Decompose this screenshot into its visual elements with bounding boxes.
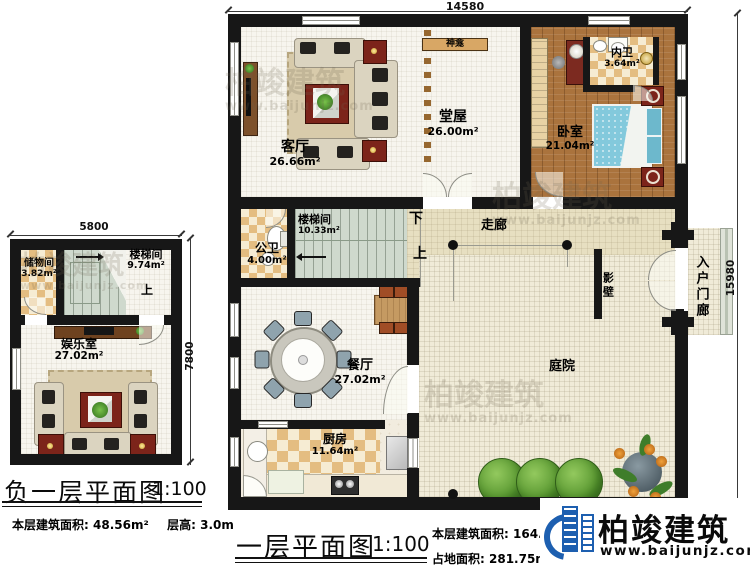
wall: [407, 468, 419, 498]
fruit: [656, 456, 667, 467]
room-label-woshi: 卧室 21.04m²: [535, 126, 605, 152]
wall: [47, 315, 139, 325]
room-name: 娱乐室: [48, 338, 110, 351]
room-label-neiwei: 内卫 3.64m²: [596, 47, 648, 69]
title-underline: [2, 501, 202, 507]
pillow: [646, 136, 662, 164]
dim-top-floor1: 14580: [420, 0, 510, 13]
plant: [317, 94, 333, 110]
window: [230, 42, 239, 116]
plant: [245, 64, 254, 73]
room-label-tingyuan: 庭院: [534, 360, 590, 375]
room-label-tangwu: 堂屋 26.00m²: [408, 110, 498, 138]
stair-arrow: [76, 256, 100, 258]
wall: [675, 311, 688, 510]
stat-label: 层高:: [167, 518, 196, 532]
dining-chair: [294, 311, 312, 326]
column-dot: [562, 240, 572, 250]
porch-column: [671, 309, 684, 335]
room-area: 21.04m²: [535, 141, 605, 153]
wall: [520, 26, 531, 197]
room-area: 4.00m²: [243, 255, 291, 266]
dim-top-basement: 5800: [70, 221, 118, 233]
wall: [21, 315, 25, 325]
tv: [246, 78, 251, 116]
stair-arrow-head: [98, 253, 104, 261]
sofa-cushion: [42, 414, 55, 428]
floor1-land-stat: 占地面积: 281.75m²: [432, 550, 553, 567]
eave-line: [453, 245, 567, 246]
basement-scale: 1:100: [152, 478, 207, 500]
sofa-cushion: [134, 390, 147, 404]
stair-landing-line: [295, 240, 407, 241]
column-dot: [448, 240, 458, 250]
logo-tower-icon: [581, 514, 594, 552]
fruit: [644, 444, 655, 455]
window: [230, 437, 239, 467]
wall: [164, 315, 171, 325]
wall: [583, 37, 590, 85]
room-area: 9.74m²: [120, 261, 172, 272]
sofa-cushion: [372, 116, 388, 130]
wall: [472, 197, 533, 209]
table-centerpiece: [298, 355, 308, 365]
sofa-cushion: [72, 438, 87, 450]
stat-label: 本层建筑面积:: [432, 527, 509, 541]
stair-down-label: 下: [406, 212, 426, 228]
stair-arrow: [300, 256, 326, 258]
burner: [346, 480, 354, 488]
room-label-yingbi: 影壁: [601, 264, 613, 308]
dim-tick: [7, 230, 15, 238]
wall: [583, 85, 635, 92]
wall: [171, 239, 182, 465]
room-name: 厨房: [300, 433, 370, 446]
room-label-loutijian: 楼梯间 10.33m²: [298, 214, 356, 236]
stair-up-label: 上: [410, 247, 430, 263]
prep-table: [268, 470, 304, 494]
room-area: 10.33m²: [298, 226, 356, 236]
stat-label: 本层建筑面积:: [12, 518, 89, 532]
room-area: 26.00m²: [408, 126, 498, 138]
room-label-gongwei: 公卫 4.00m²: [243, 242, 291, 267]
room-area: 26.66m²: [250, 156, 340, 168]
room-label-rumenlang: 入户门廊: [693, 254, 708, 320]
room-label-canting: 餐厅 27.02m²: [320, 359, 400, 386]
room-label-yuleshi: 娱乐室 27.02m²: [48, 338, 110, 363]
dim-tick: [684, 6, 692, 14]
room-name: 卧室: [535, 126, 605, 141]
stair-arrow-head: [296, 253, 302, 261]
window: [230, 303, 239, 337]
room-label-zoulang: 走廊: [470, 219, 518, 234]
sofa-cushion: [334, 42, 350, 54]
room-area: 3.64m²: [596, 59, 648, 69]
room-area: 3.82m²: [18, 269, 60, 279]
stat-label: 占地面积:: [432, 552, 485, 566]
dim-right-floor1: 15980: [725, 248, 737, 308]
burner: [335, 480, 343, 488]
room-name: 公卫: [243, 242, 291, 255]
sofa-cushion: [134, 414, 147, 428]
sofa-cushion: [42, 390, 55, 404]
chair: [379, 322, 394, 334]
wall: [407, 287, 419, 365]
wall: [407, 413, 419, 438]
sofa-cushion: [372, 92, 388, 106]
side-table-decor: [371, 48, 377, 54]
room-name: 客厅: [250, 140, 340, 156]
stat-value: 3.0m: [200, 518, 234, 532]
porch-column: [671, 222, 684, 248]
chair: [379, 286, 394, 298]
logo-url[interactable]: www.baijunjz.com: [600, 543, 750, 559]
pillow: [646, 108, 662, 136]
floor-plan-sheet: 14580 15980: [0, 0, 750, 574]
wall: [10, 454, 182, 465]
wall: [653, 37, 659, 85]
wall: [563, 197, 675, 209]
plant: [92, 402, 108, 418]
side-table-decor: [139, 443, 145, 449]
window: [588, 16, 630, 25]
logo-tower-icon: [562, 506, 578, 552]
room-label-shenkan: 神龛: [422, 39, 488, 49]
fruit: [628, 486, 639, 497]
window: [677, 44, 686, 80]
window: [258, 421, 288, 428]
side-table-decor: [47, 443, 53, 449]
window: [408, 438, 418, 468]
stool: [552, 56, 565, 69]
dim-line: [10, 235, 182, 236]
wall: [240, 197, 423, 209]
dim-right-basement: 7800: [184, 326, 196, 386]
fridge: [386, 436, 408, 470]
eave-line: [453, 245, 454, 301]
room-label-chuwujian: 储物间 3.82m²: [18, 258, 60, 279]
room-name: 楼梯间: [298, 214, 356, 226]
stair-railing: [70, 262, 100, 304]
dim-tick: [178, 230, 186, 238]
nightstand-decor: [646, 170, 660, 184]
sofa-cushion: [300, 42, 316, 54]
sofa-cushion: [372, 68, 388, 82]
room-area: 11.64m²: [300, 446, 370, 457]
room-name: 储物间: [18, 258, 60, 269]
room-area: 27.02m²: [320, 374, 400, 386]
fruit: [614, 448, 625, 459]
corridor-floor: [407, 209, 675, 255]
room-name: 内卫: [596, 47, 648, 59]
room-name: 堂屋: [408, 110, 498, 126]
window: [677, 96, 686, 164]
title-underline: [235, 557, 427, 563]
room-area: 27.02m²: [48, 351, 110, 363]
stair-up-label-basement: 上: [138, 284, 156, 297]
room-label-b-loutijian: 楼梯间 9.74m²: [120, 249, 172, 272]
stat-value: 48.56m²: [93, 518, 149, 532]
room-label-chufang: 厨房 11.64m²: [300, 433, 370, 458]
side-table-decor: [370, 147, 376, 153]
floor1-scale: 1:100: [372, 532, 430, 556]
room-name: 餐厅: [320, 359, 400, 374]
room-label-keting: 客厅 26.66m²: [250, 140, 340, 168]
window: [230, 357, 239, 389]
wall: [240, 278, 420, 287]
dining-chair: [255, 351, 270, 369]
dim-line-right: [737, 14, 738, 510]
sofa-cushion: [104, 438, 119, 450]
column-dot: [448, 489, 458, 499]
lamp: [569, 44, 584, 59]
tv: [84, 327, 114, 335]
kitchen-sink: [247, 441, 268, 462]
basement-stats: 本层建筑面积: 48.56m² 层高: 3.0m: [12, 516, 234, 533]
dim-tick: [225, 6, 233, 14]
window: [12, 348, 21, 390]
dining-chair: [294, 393, 312, 408]
window: [302, 16, 360, 25]
